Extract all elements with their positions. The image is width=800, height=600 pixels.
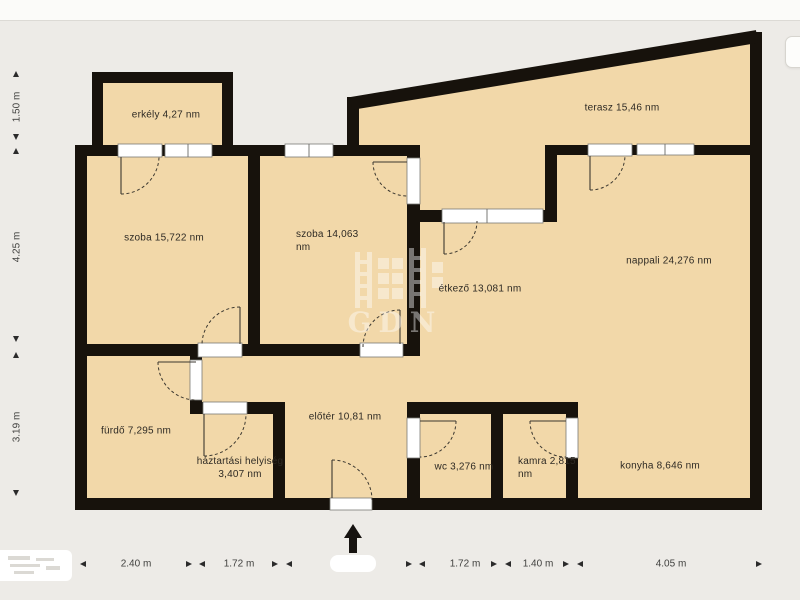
szoba1-window (165, 144, 212, 157)
dim-bottom-3: 1.72 m (450, 559, 481, 570)
dim-arrow-right (406, 561, 412, 567)
entrance-arrow-stem (349, 537, 357, 553)
room-label-kamra: kamra 2,815 nm (518, 455, 580, 481)
dim-arrow-up (13, 71, 19, 77)
room-label-terasz: terasz 15,46 nm (585, 103, 660, 114)
terasz-etkezo-window-door (442, 209, 543, 223)
entrance-arrow-icon (344, 524, 362, 538)
dim-arrow-right (186, 561, 192, 567)
szoba2-etkezo-door (407, 158, 420, 204)
room-label-erkely: erkély 4,27 nm (132, 110, 200, 121)
room-label-etkezo: étkező 13,081 nm (439, 284, 522, 295)
dim-arrow-right (756, 561, 762, 567)
room-label-szoba2: szoba 14,063 nm (296, 228, 360, 254)
room-label-szoba1: szoba 15,722 nm (124, 233, 204, 244)
dim-left-2: 4.25 m (12, 232, 23, 263)
dim-left-3: 3.19 m (12, 412, 23, 443)
room-label-konyha: konyha 8,646 nm (620, 461, 700, 472)
dim-arrow-left (505, 561, 511, 567)
wc-door (407, 418, 420, 458)
dim-arrow-left (419, 561, 425, 567)
dim-arrow-left (577, 561, 583, 567)
entrance-door (330, 498, 372, 510)
corner-stamp (0, 550, 72, 581)
terasz-nappali-door (588, 144, 632, 156)
haztartasi-door (203, 402, 247, 414)
dim-arrow-down (13, 336, 19, 342)
floorplan-canvas (0, 0, 800, 600)
dim-arrow-right (491, 561, 497, 567)
szoba2-door (360, 343, 403, 357)
room-label-haztartasi: háztartási helyiség 3,407 nm (192, 455, 288, 481)
balcony-door (118, 144, 162, 157)
dim-bottom-2: 1.72 m (224, 559, 255, 570)
kamra-door (566, 418, 578, 458)
room-label-nappali: nappali 24,276 nm (626, 256, 712, 267)
dim-arrow-down (13, 490, 19, 496)
dim-arrow-up (13, 352, 19, 358)
furdo-door (190, 360, 202, 400)
dim-arrow-up (13, 148, 19, 154)
room-label-furdo: fürdő 7,295 nm (101, 426, 171, 437)
dim-bottom-1: 2.40 m (121, 559, 152, 570)
room-label-eloter: előtér 10,81 nm (309, 412, 382, 423)
dim-arrow-left (286, 561, 292, 567)
room-label-wc: wc 3,276 nm (435, 462, 494, 473)
dim-bottom-4: 1.40 m (523, 559, 554, 570)
dim-bottom-5: 4.05 m (656, 559, 687, 570)
dim-arrow-right (272, 561, 278, 567)
dim-arrow-right (563, 561, 569, 567)
dim-left-1: 1.50 m (12, 92, 23, 123)
floorplan-page: GDN erkély 4,27 nm szoba 15,722 nm szoba… (0, 0, 800, 600)
side-control-button[interactable] (785, 36, 800, 68)
entrance-dim-blob (330, 555, 376, 572)
dim-arrow-down (13, 134, 19, 140)
szoba1-door (198, 343, 242, 357)
dim-arrow-left (199, 561, 205, 567)
nappali-window (637, 144, 694, 155)
dim-arrow-left (80, 561, 86, 567)
